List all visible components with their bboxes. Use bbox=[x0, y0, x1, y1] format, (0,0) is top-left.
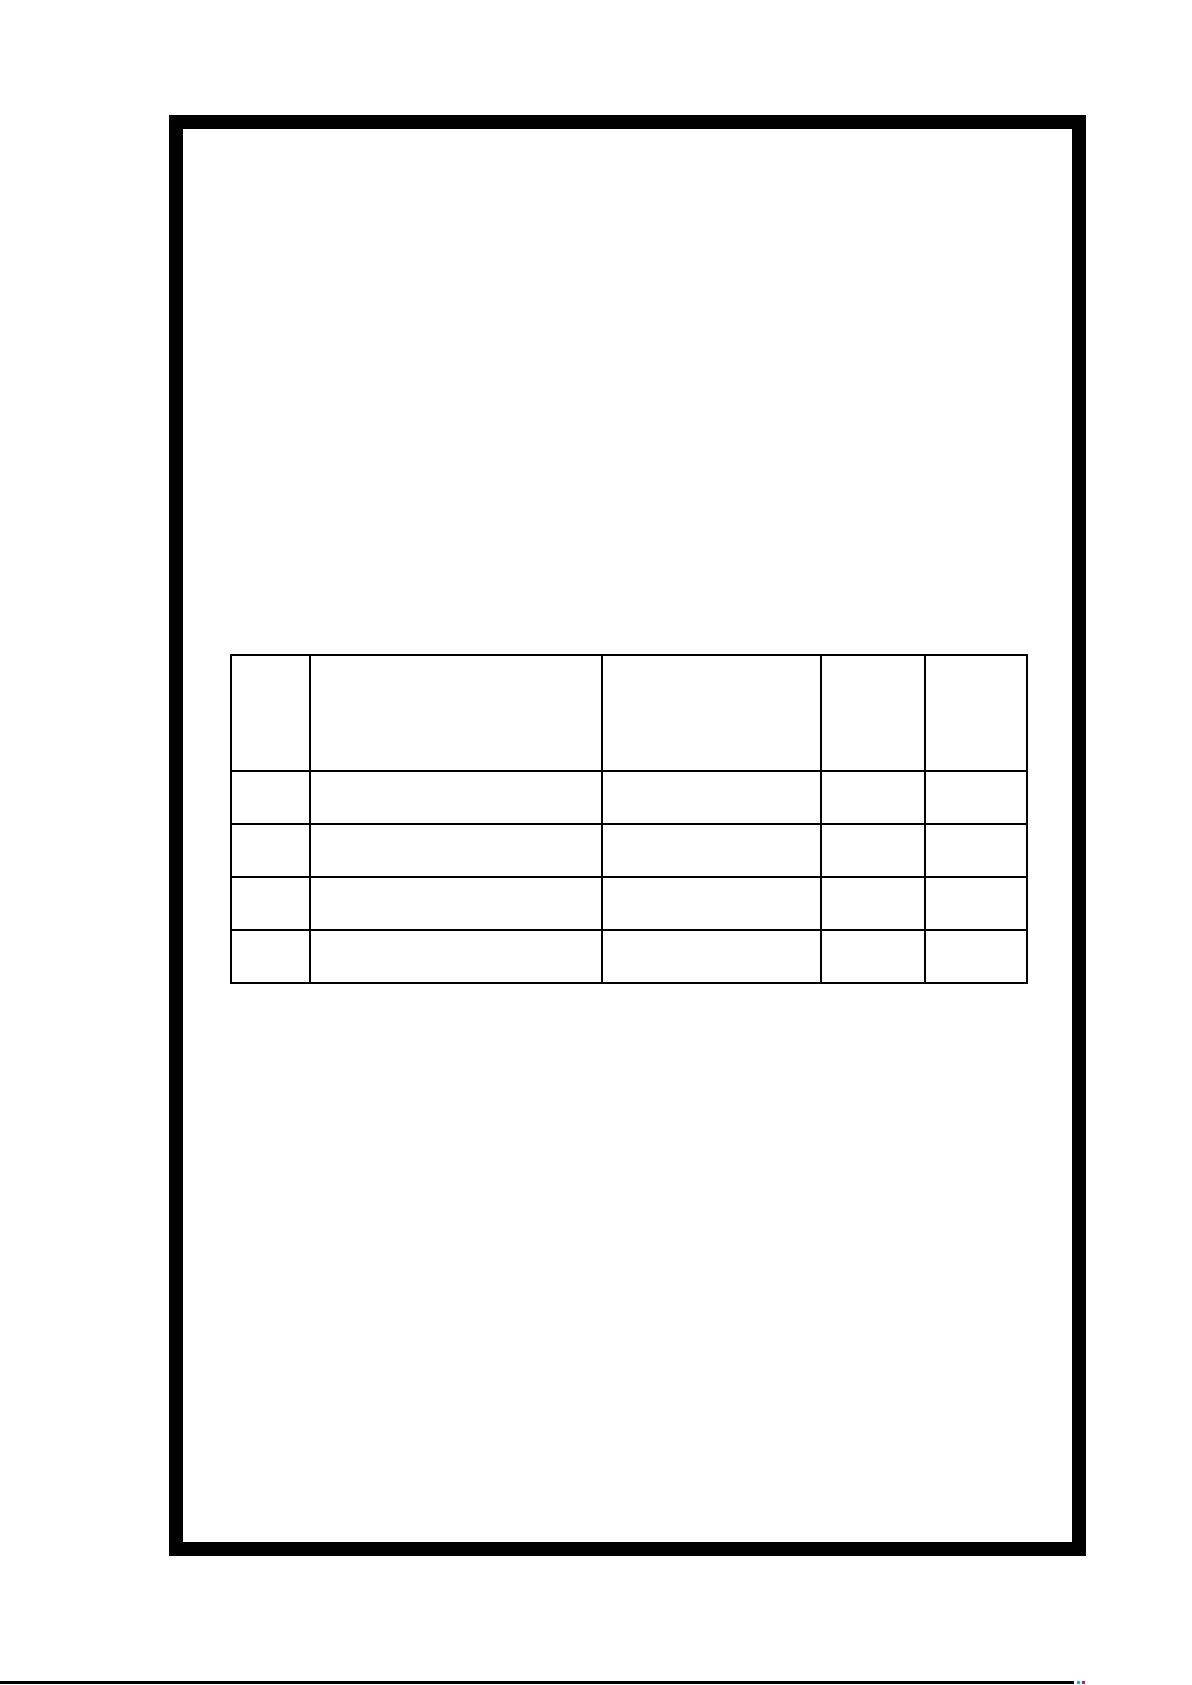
table-cell bbox=[310, 930, 602, 983]
table-cell bbox=[231, 771, 310, 824]
table-cell bbox=[310, 877, 602, 930]
table-cell bbox=[925, 824, 1027, 877]
table-cell bbox=[310, 771, 602, 824]
table-cell bbox=[925, 877, 1027, 930]
table-header-cell bbox=[602, 655, 821, 771]
table-header-cell bbox=[231, 655, 310, 771]
table-header-cell bbox=[310, 655, 602, 771]
table-body bbox=[231, 655, 1027, 983]
table-row bbox=[231, 877, 1027, 930]
scan-artifact-magenta-dot bbox=[1082, 1681, 1085, 1684]
table-cell bbox=[602, 824, 821, 877]
table-cell bbox=[821, 771, 925, 824]
scan-artifact-cyan-dot bbox=[1077, 1681, 1080, 1684]
table-cell bbox=[602, 930, 821, 983]
table-row bbox=[231, 771, 1027, 824]
table-cell bbox=[925, 930, 1027, 983]
table-cell bbox=[821, 877, 925, 930]
page-bottom-rule bbox=[0, 1681, 1074, 1684]
table-cell bbox=[231, 930, 310, 983]
table-header-row bbox=[231, 655, 1027, 771]
table-cell bbox=[821, 824, 925, 877]
table-cell bbox=[821, 930, 925, 983]
empty-table bbox=[230, 654, 1028, 984]
table-cell bbox=[231, 877, 310, 930]
table-cell bbox=[602, 877, 821, 930]
table-header-cell bbox=[925, 655, 1027, 771]
table-header-cell bbox=[821, 655, 925, 771]
table-cell bbox=[231, 824, 310, 877]
table-row bbox=[231, 824, 1027, 877]
table-cell bbox=[602, 771, 821, 824]
table-cell bbox=[310, 824, 602, 877]
table-row bbox=[231, 930, 1027, 983]
table-cell bbox=[925, 771, 1027, 824]
